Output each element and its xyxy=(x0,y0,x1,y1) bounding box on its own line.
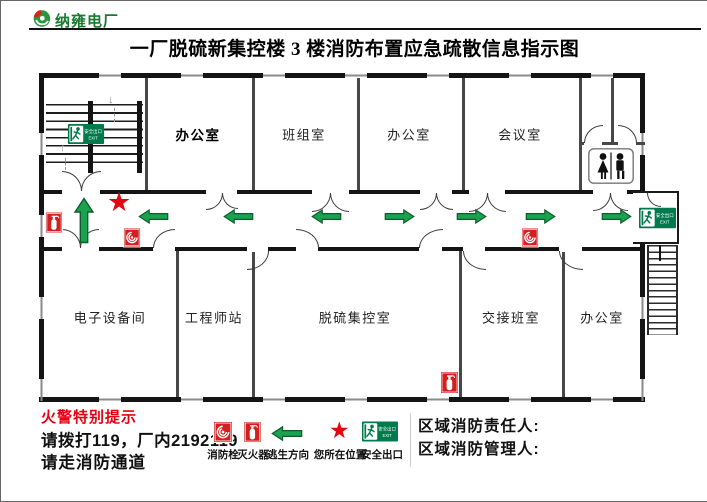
safety-exit-sign: 安全出口 EXIT xyxy=(362,421,398,442)
stair-down-arrow: ↓ xyxy=(108,95,114,106)
your-location-star: ★ xyxy=(107,189,131,216)
stair-handrail xyxy=(659,245,661,261)
door-arc xyxy=(62,171,82,191)
door-arc xyxy=(247,251,269,270)
legend-label-escape-direction: 逃生方向 xyxy=(267,447,309,462)
fire-extinguisher-icon xyxy=(440,371,459,394)
door-arc xyxy=(463,251,486,270)
wall-segment xyxy=(459,251,462,397)
evacuation-arrow-right xyxy=(601,208,632,225)
room-label-team-room: 班组室 xyxy=(282,125,326,144)
plant-logo-icon xyxy=(30,7,52,29)
fire-responsible-person: 区域消防责任人: xyxy=(418,414,540,436)
door-arc xyxy=(153,229,175,248)
fire-hydrant-icon xyxy=(123,227,141,248)
outer-wall-top xyxy=(39,73,645,78)
stairs-right-external xyxy=(647,245,678,335)
evacuation-arrow-right xyxy=(525,208,556,225)
room-label-office-1: 办公室 xyxy=(176,124,221,144)
room-label-office-2: 办公室 xyxy=(387,125,431,144)
fire-extinguisher-icon xyxy=(45,211,63,234)
evacuation-arrow-right xyxy=(384,208,415,225)
door-arc xyxy=(419,229,443,248)
fire-warning-heading: 火警特别提示 xyxy=(41,406,137,427)
legend-divider xyxy=(410,413,411,467)
wall-segment xyxy=(252,78,255,190)
door-arc xyxy=(618,125,637,143)
evacuation-arrow-left xyxy=(223,208,254,225)
room-label-electronics-room: 电子设备间 xyxy=(74,308,147,327)
wall-segment xyxy=(357,78,360,190)
room-label-shift-room: 交接班室 xyxy=(482,308,540,327)
evacuation-arrow-right xyxy=(456,208,487,225)
stair-stringer xyxy=(137,101,142,173)
fire-hydrant-icon xyxy=(521,227,539,248)
wall-segment xyxy=(562,251,565,397)
svg-text:安全出口: 安全出口 xyxy=(656,212,674,219)
legend-label-your-location: 您所在位置 xyxy=(314,447,367,462)
page-title: 一厂脱硫新集控楼 3 楼消防布置应急疏散信息指示图 xyxy=(1,34,707,61)
restroom-sign xyxy=(588,148,634,184)
wall-segment xyxy=(176,251,179,397)
fire-extinguisher-icon xyxy=(243,421,262,443)
escape-direction-arrow xyxy=(271,425,303,442)
svg-text:EXIT: EXIT xyxy=(88,136,98,141)
stair-up-arrow: ↑ xyxy=(60,143,66,154)
door-arc xyxy=(222,193,238,209)
room-label-control-room: 脱硫集控室 xyxy=(319,308,392,327)
legend-label-extinguisher: 灭火器 xyxy=(237,447,269,462)
legend-label-safety-exit: 安全出口 xyxy=(361,447,403,462)
stair-direction-dash xyxy=(114,108,115,122)
fire-hydrant-icon xyxy=(213,421,233,443)
outer-wall-left xyxy=(39,73,44,402)
evacuation-arrow-left xyxy=(138,208,169,225)
room-label-meeting-room: 会议室 xyxy=(498,125,542,144)
door-arc xyxy=(487,193,506,212)
door-arc xyxy=(206,193,223,210)
room-label-office-3: 办公室 xyxy=(580,308,624,327)
outer-wall-bottom xyxy=(39,397,645,402)
evacuation-arrow-left xyxy=(311,208,342,225)
svg-text:EXIT: EXIT xyxy=(382,433,392,438)
svg-text:EXIT: EXIT xyxy=(660,220,670,225)
svg-text:安全出口: 安全出口 xyxy=(378,426,395,433)
door-arc xyxy=(296,229,319,248)
wall-segment xyxy=(252,251,255,397)
your-location-star: ★ xyxy=(329,419,350,442)
door-arc xyxy=(584,125,603,143)
evacuation-sign-page: 纳雍电厂 一厂脱硫新集控楼 3 楼消防布置应急疏散信息指示图 xyxy=(0,0,707,502)
header-rule xyxy=(29,28,701,30)
safety-exit-sign: 安全出口 EXIT xyxy=(639,207,676,229)
wall-segment xyxy=(462,78,465,190)
evacuation-arrow-up xyxy=(73,197,95,244)
door-arc xyxy=(420,193,437,210)
safety-exit-sign: 安全出口 EXIT xyxy=(66,124,106,144)
door-arc xyxy=(81,171,101,191)
room-label-engineer-station: 工程师站 xyxy=(185,308,243,327)
door-arc xyxy=(436,193,453,210)
woman-icon xyxy=(600,153,607,160)
wall-segment xyxy=(145,78,148,190)
stair-direction-dash xyxy=(65,158,66,170)
fire-warning-route: 请走消防通道 xyxy=(41,449,146,473)
wall-segment xyxy=(579,78,582,190)
toilet-divider-wall xyxy=(611,78,614,142)
legend-label-hydrant: 消防栓 xyxy=(207,447,239,462)
man-icon xyxy=(617,153,624,160)
svg-text:安全出口: 安全出口 xyxy=(84,128,102,135)
fire-management-person: 区域消防管理人: xyxy=(418,437,540,459)
